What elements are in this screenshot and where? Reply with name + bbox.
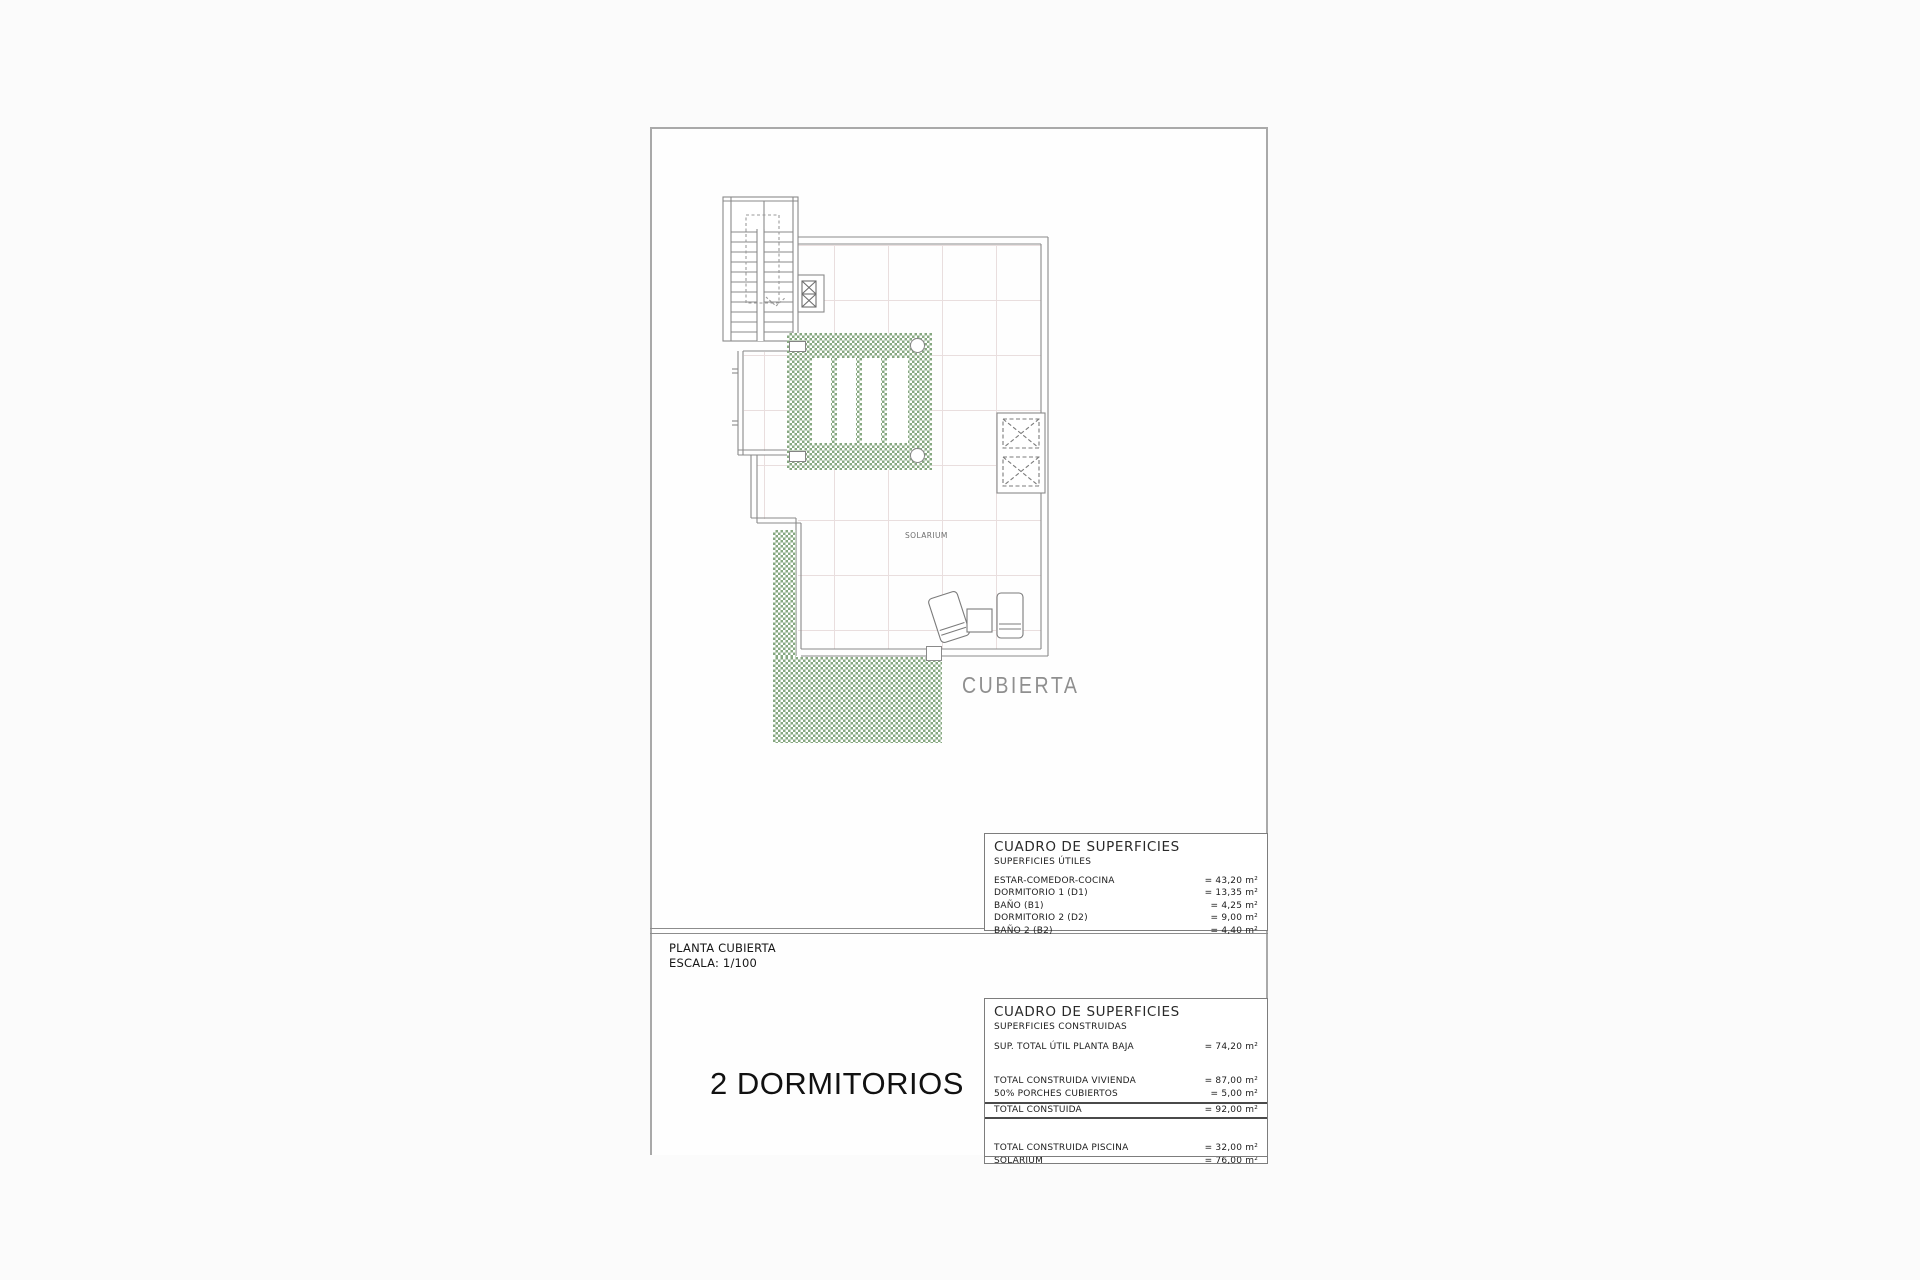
surface-table-utiles: CUADRO DE SUPERFICIES SUPERFICIES ÚTILES… xyxy=(984,833,1268,931)
pergola-opening xyxy=(862,358,881,443)
table-row: DORMITORIO 1 (D1) = 13,35 m² xyxy=(994,887,1258,899)
pergola-opening xyxy=(812,358,831,443)
porch-hatch-column xyxy=(773,530,796,657)
table-title: CUADRO DE SUPERFICIES xyxy=(994,1004,1258,1020)
cubierta-label: CUBIERTA xyxy=(962,672,1079,699)
table-subtitle: SUPERFICIES CONSTRUIDAS xyxy=(994,1022,1258,1032)
table-row: DORMITORIO 2 (D2) = 9,00 m² xyxy=(994,912,1258,924)
lounger-tilted xyxy=(928,590,971,643)
porch-hatch-block xyxy=(773,657,942,743)
table-row: 50% PORCHES CUBIERTOS = 5,00 m² xyxy=(994,1088,1258,1100)
plan-scale-line: ESCALA: 1/100 xyxy=(669,956,776,971)
table-row: BAÑO 2 (B2) = 4,40 m² xyxy=(994,925,1258,937)
plan-name-line: PLANTA CUBIERTA xyxy=(669,941,776,956)
table-total-row: TOTAL CONSTUIDA = 92,00 m² xyxy=(985,1102,1267,1119)
surface-table-construidas: CUADRO DE SUPERFICIES SUPERFICIES CONSTR… xyxy=(984,998,1268,1164)
table-row: BAÑO (B1) = 4,25 m² xyxy=(994,900,1258,912)
bedrooms-label: 2 DORMITORIOS xyxy=(710,1066,964,1102)
pergola-opening xyxy=(837,358,856,443)
plan-title: PLANTA CUBIERTA ESCALA: 1/100 xyxy=(669,941,776,971)
pergola-hatch xyxy=(787,333,932,470)
pergola-post xyxy=(789,451,806,462)
table-row: TOTAL CONSTRUIDA PISCINA = 32,00 m² xyxy=(994,1142,1258,1154)
wall-break-pillar xyxy=(926,646,942,661)
table-row: SUP. TOTAL ÚTIL PLANTA BAJA = 74,20 m² xyxy=(994,1041,1258,1053)
table-title: CUADRO DE SUPERFICIES xyxy=(994,839,1258,855)
pergola-post xyxy=(910,338,925,353)
table-subtitle: SUPERFICIES ÚTILES xyxy=(994,857,1258,867)
sun-loungers xyxy=(928,590,1023,643)
lounger-upright xyxy=(997,593,1023,638)
skylights xyxy=(997,413,1045,493)
solarium-label: SOLARIUM xyxy=(905,531,948,540)
side-table xyxy=(967,609,992,632)
pergola-opening xyxy=(887,358,908,443)
table-bottom-rule xyxy=(985,1156,1267,1157)
stairwell xyxy=(723,197,798,341)
pergola-post xyxy=(789,341,806,352)
chimney xyxy=(798,275,824,312)
pergola-post xyxy=(910,448,925,463)
drawing-page: SOLARIUM CUBIERTA PLANTA CUBIERTA ESCALA… xyxy=(0,0,1920,1280)
table-row: TOTAL CONSTRUIDA VIVIENDA = 87,00 m² xyxy=(994,1075,1258,1087)
table-row: ESTAR-COMEDOR-COCINA = 43,20 m² xyxy=(994,875,1258,887)
